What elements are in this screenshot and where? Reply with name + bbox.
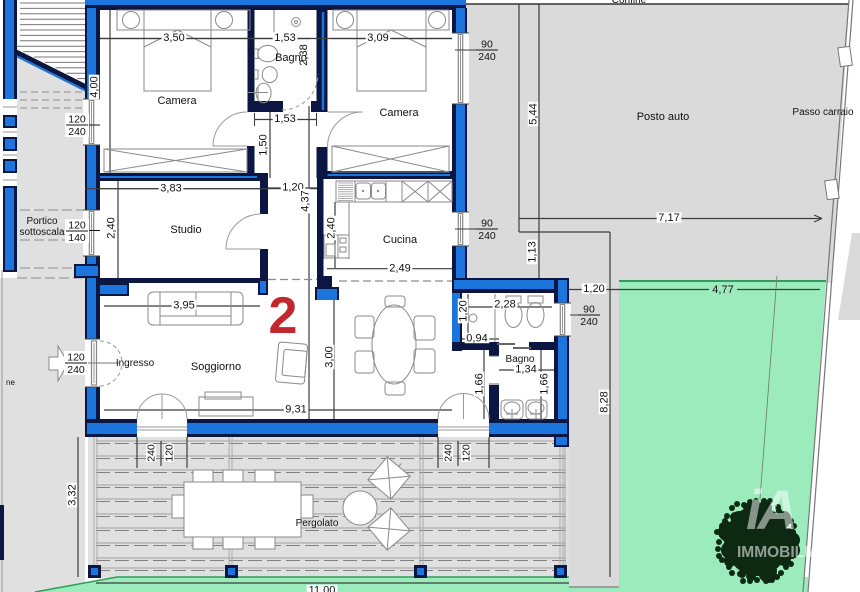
- svg-text:3,83: 3,83: [160, 182, 181, 194]
- svg-text:240: 240: [580, 316, 598, 328]
- svg-text:4,77: 4,77: [712, 284, 733, 296]
- svg-text:Portico: Portico: [26, 216, 58, 227]
- svg-text:11,00: 11,00: [309, 585, 336, 592]
- svg-text:1,20: 1,20: [583, 283, 604, 295]
- svg-text:Ingresso: Ingresso: [116, 358, 155, 369]
- svg-text:Pergolato: Pergolato: [296, 518, 339, 529]
- svg-text:3,09: 3,09: [367, 32, 388, 44]
- svg-text:Confine: Confine: [612, 0, 647, 6]
- svg-text:2,28: 2,28: [494, 299, 515, 311]
- svg-text:Cucina: Cucina: [383, 234, 418, 246]
- svg-text:1,66: 1,66: [539, 373, 551, 394]
- svg-text:90: 90: [583, 304, 595, 316]
- svg-text:3,50: 3,50: [163, 32, 184, 44]
- svg-text:Soggiorno: Soggiorno: [191, 361, 241, 373]
- svg-text:120: 120: [68, 220, 86, 232]
- svg-text:140: 140: [68, 232, 86, 244]
- svg-text:4,00: 4,00: [89, 76, 101, 97]
- svg-text:3,95: 3,95: [173, 300, 194, 312]
- svg-text:1,53: 1,53: [274, 113, 295, 125]
- svg-text:3,32: 3,32: [67, 484, 79, 505]
- svg-text:1,20: 1,20: [458, 300, 470, 321]
- svg-text:9,31: 9,31: [285, 404, 306, 416]
- svg-text:Passo carraio: Passo carraio: [792, 107, 854, 118]
- svg-text:1,50: 1,50: [258, 134, 270, 155]
- svg-text:IMMOBILIARE: IMMOBILIARE: [737, 544, 841, 561]
- svg-text:2,40: 2,40: [106, 217, 118, 238]
- svg-text:240: 240: [68, 126, 86, 138]
- svg-text:3,00: 3,00: [324, 346, 336, 367]
- svg-text:Posto auto: Posto auto: [637, 111, 690, 123]
- svg-text:Camera: Camera: [157, 95, 197, 107]
- svg-text:90: 90: [481, 39, 493, 51]
- svg-text:120: 120: [68, 114, 86, 126]
- svg-text:0,94: 0,94: [466, 333, 487, 345]
- svg-text:8,28: 8,28: [599, 391, 611, 412]
- svg-text:4,37: 4,37: [300, 190, 312, 211]
- svg-text:240: 240: [145, 444, 157, 462]
- svg-text:Studio: Studio: [170, 224, 201, 236]
- svg-text:1,66: 1,66: [474, 373, 486, 394]
- svg-text:120: 120: [163, 444, 175, 462]
- svg-text:2: 2: [269, 287, 298, 345]
- svg-text:2,40: 2,40: [326, 217, 338, 238]
- svg-text:Bagno: Bagno: [275, 52, 307, 64]
- svg-text:90: 90: [481, 218, 493, 230]
- svg-text:iA: iA: [746, 478, 795, 541]
- svg-text:240: 240: [442, 444, 454, 462]
- svg-text:240: 240: [478, 51, 496, 63]
- svg-text:Camera: Camera: [379, 107, 419, 119]
- svg-text:7,17: 7,17: [658, 212, 679, 224]
- svg-text:2,49: 2,49: [389, 262, 410, 274]
- svg-text:1,53: 1,53: [274, 32, 295, 44]
- svg-text:sottoscala: sottoscala: [19, 227, 64, 238]
- svg-text:5,44: 5,44: [528, 103, 540, 124]
- svg-text:120: 120: [460, 444, 472, 462]
- svg-text:ne: ne: [6, 378, 15, 387]
- svg-text:1,34: 1,34: [515, 364, 536, 376]
- svg-text:240: 240: [67, 364, 85, 376]
- svg-text:120: 120: [67, 352, 85, 364]
- svg-text:240: 240: [478, 230, 496, 242]
- svg-text:1,13: 1,13: [527, 241, 539, 262]
